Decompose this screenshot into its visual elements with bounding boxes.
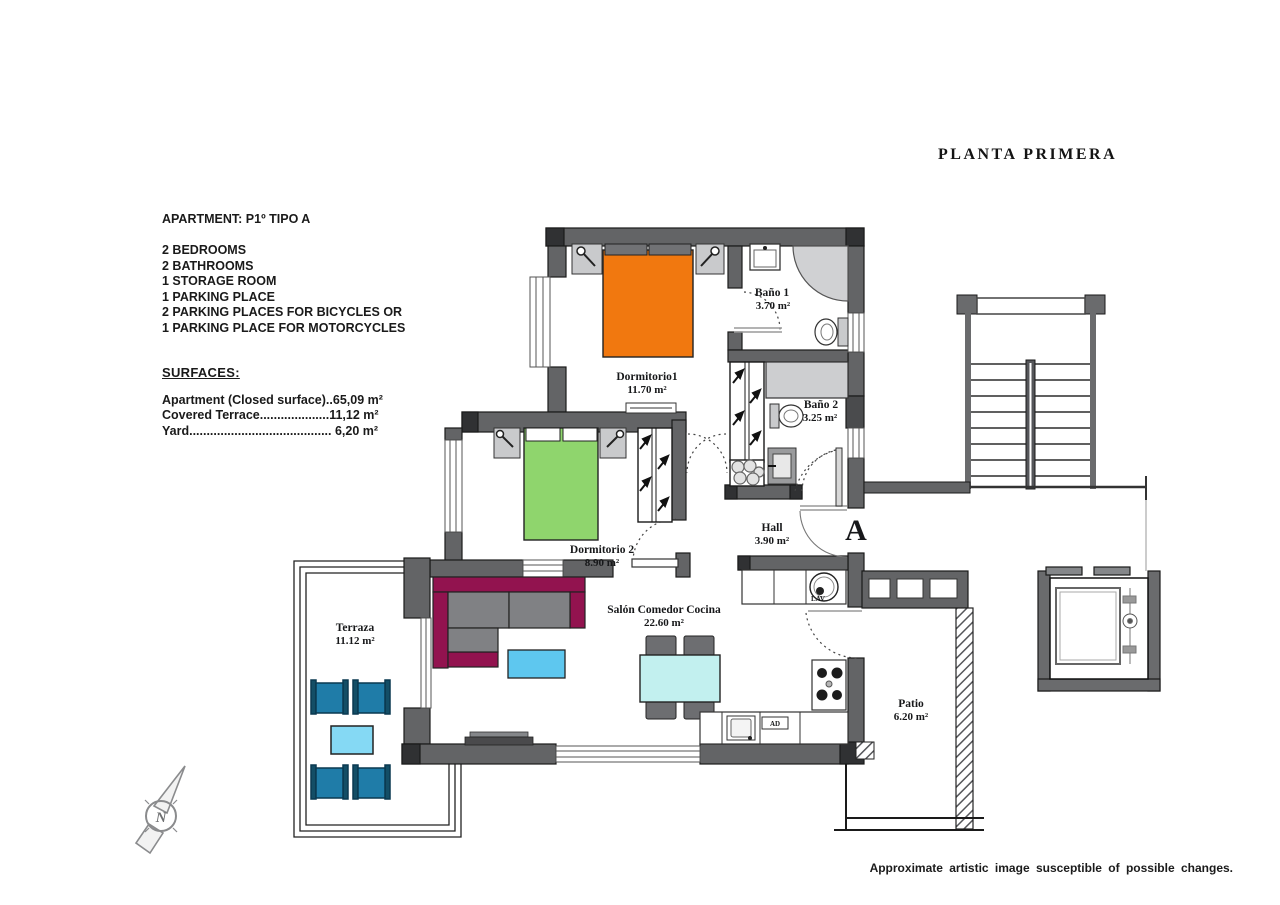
compass-north-label: N xyxy=(155,810,168,826)
elevator-block xyxy=(862,567,1160,691)
door-arc-patio xyxy=(806,613,858,658)
dining-set xyxy=(640,636,720,719)
terrace-chair xyxy=(311,680,348,714)
door-arc-dorm1-a xyxy=(688,434,727,473)
nightstand xyxy=(696,244,724,274)
bed-double xyxy=(524,428,598,540)
sliding-glass-door xyxy=(421,618,431,708)
stair-post xyxy=(1085,295,1105,314)
door-arc-dorm2 xyxy=(633,519,676,561)
bed-double xyxy=(603,250,693,357)
room-area-dormitorio2: 8.90 m² xyxy=(585,557,620,569)
terrace-chair xyxy=(311,765,348,799)
window-dormitorio2 xyxy=(445,440,462,532)
door-arc-dorm1-b xyxy=(687,434,726,473)
pillow xyxy=(649,244,691,255)
tv-unit xyxy=(465,732,533,745)
compass-needle xyxy=(154,766,185,813)
room-label-dormitorio1: Dormitorio1 xyxy=(616,371,678,383)
pillow xyxy=(605,244,647,255)
kitchen-stove-counter xyxy=(812,660,846,710)
stair-side-wall xyxy=(965,313,971,489)
disclaimer-text: Approximate artistic image susceptible o… xyxy=(870,861,1233,875)
coffee-table xyxy=(508,650,565,678)
room-area-bano1: 3.70 m² xyxy=(756,300,791,312)
sink xyxy=(750,244,780,270)
room-area-hall: 3.90 m² xyxy=(755,535,790,547)
room-label-bano1: Baño 1 xyxy=(755,287,789,299)
terrace-table xyxy=(331,726,373,754)
dormitorio2: Dormitorio 2 8.90 m² xyxy=(494,428,634,569)
hall-sink-cabinet xyxy=(768,448,796,484)
north-compass: N xyxy=(136,766,185,853)
elevator-mechanism xyxy=(1123,588,1137,664)
room-label-bano2: Baño 2 xyxy=(804,399,838,411)
entrance-letter: A xyxy=(845,514,867,547)
dining-chair xyxy=(646,701,676,719)
entrance-door-leaf xyxy=(836,448,842,506)
room-label-patio: Patio xyxy=(898,698,924,710)
dormitorio1: Dormitorio1 11.70 m² xyxy=(572,244,724,413)
room-label-dormitorio2: Dormitorio 2 xyxy=(570,544,634,556)
toilet xyxy=(815,318,848,346)
room-label-salon: Salón Comedor Cocina xyxy=(607,604,721,616)
room-area-salon: 22.60 m² xyxy=(644,617,685,629)
room-area-patio: 6.20 m² xyxy=(894,711,929,723)
dining-chair xyxy=(684,636,714,656)
pillow xyxy=(526,428,560,441)
terrace-chair xyxy=(353,765,390,799)
wardrobe-corridor xyxy=(730,362,764,462)
window-salon xyxy=(556,746,700,762)
washer-label: LAV xyxy=(811,595,825,603)
gallery-wall xyxy=(862,571,968,608)
shower-corner xyxy=(793,246,848,301)
window-dormitorio1 xyxy=(530,277,550,367)
compass-tail xyxy=(136,824,163,853)
window-hall xyxy=(848,428,864,458)
room-label-terraza: Terraza xyxy=(336,622,375,634)
patio-gate-hatch xyxy=(856,742,874,759)
elevator-car xyxy=(1056,588,1120,664)
dining-chair xyxy=(646,636,676,656)
dresser xyxy=(626,403,676,413)
shower-tray xyxy=(766,362,848,398)
stair-post xyxy=(957,295,977,314)
dorm2-door-leaf xyxy=(632,559,678,567)
entrance-swing-arc xyxy=(800,511,847,557)
toilet xyxy=(770,404,803,428)
hall: Hall 3.90 m² A xyxy=(755,514,867,547)
dishwasher-label: AD xyxy=(770,720,780,728)
pillow xyxy=(563,428,597,441)
stair-side-wall xyxy=(1090,313,1096,489)
kitchen-counter-bottom: AD xyxy=(700,712,848,744)
terrace-chair xyxy=(353,680,390,714)
kitchen-sink xyxy=(727,716,755,740)
window-bano1 xyxy=(848,313,864,352)
room-area-terraza: 11.12 m² xyxy=(335,635,375,647)
corridor-wall xyxy=(864,482,970,493)
bano2: Baño 2 3.25 m² xyxy=(766,362,848,428)
dining-table xyxy=(640,655,720,702)
patio-hatched-wall xyxy=(956,608,973,829)
bano1: Baño 1 3.70 m² xyxy=(750,244,848,346)
room-area-dormitorio1: 11.70 m² xyxy=(627,384,667,396)
wardrobe-dormitorio2 xyxy=(638,428,672,522)
room-label-hall: Hall xyxy=(761,522,782,534)
stair-landing xyxy=(977,298,1085,314)
salon-kitchen: LAV AD Salón Comed xyxy=(433,570,874,759)
floor-plan: Terraza 11.12 m² xyxy=(0,0,1280,905)
room-area-bano2: 3.25 m² xyxy=(803,412,838,424)
window-dormitorio2-terrace xyxy=(523,560,563,577)
kitchen-counter-top: LAV xyxy=(742,570,846,604)
staircase xyxy=(864,295,1146,571)
storage-room-pebbles xyxy=(730,460,764,486)
nightstand xyxy=(572,244,602,274)
